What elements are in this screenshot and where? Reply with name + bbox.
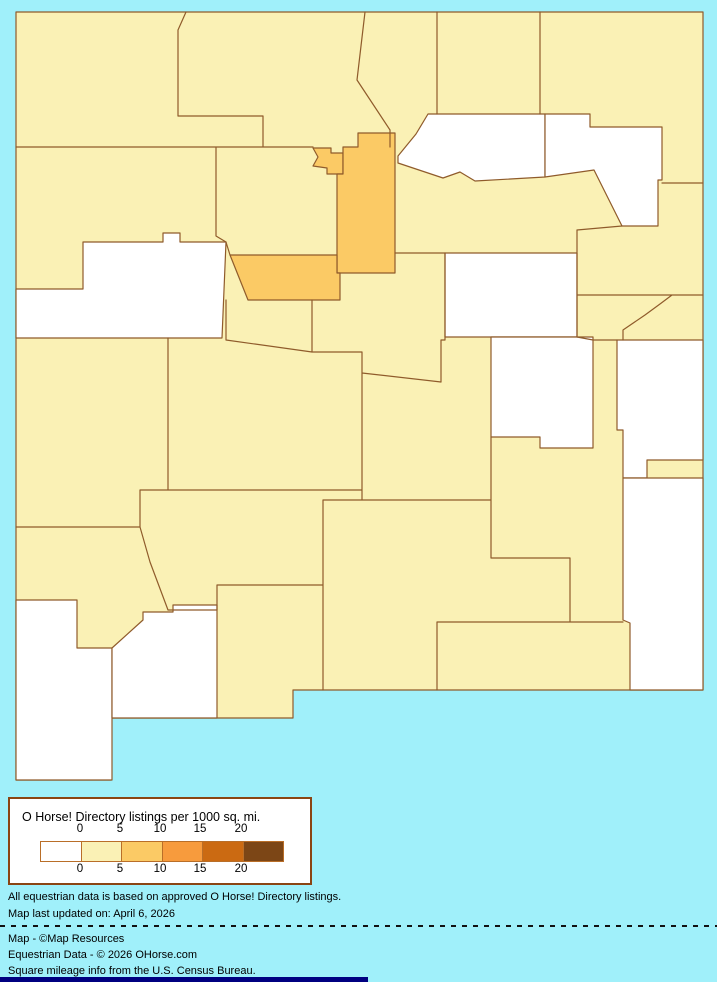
tick-label: 0 xyxy=(77,863,83,875)
tick-label: 5 xyxy=(117,863,123,875)
county-guadalupe xyxy=(445,253,577,337)
bottom-scrollbar-fragment xyxy=(0,977,368,982)
swatch-5 xyxy=(244,842,284,861)
legend-title: O Horse! Directory listings per 1000 sq.… xyxy=(22,810,260,824)
swatch-2 xyxy=(122,842,163,861)
tick-label: 10 xyxy=(154,863,167,875)
census-credit: Square mileage info from the U.S. Census… xyxy=(8,965,256,977)
tick-label: 20 xyxy=(235,863,248,875)
map-credit: Map - ©Map Resources xyxy=(8,933,124,945)
tick-label: 15 xyxy=(194,863,207,875)
swatch-3 xyxy=(163,842,204,861)
new-mexico-county-map xyxy=(0,0,717,790)
county-roosevelt xyxy=(617,340,703,478)
data-credit: Equestrian Data - © 2026 OHorse.com xyxy=(8,949,197,961)
ohorse-density-map-page: { "map": { "background_color": "#A0F0FA"… xyxy=(0,0,717,982)
swatch-0 xyxy=(41,842,82,861)
county-bernalillo xyxy=(230,255,340,300)
dashed-separator xyxy=(0,925,717,927)
tick-label: 5 xyxy=(117,823,123,835)
tick-label: 20 xyxy=(235,823,248,835)
swatch-1 xyxy=(82,842,123,861)
last-updated-note: Map last updated on: April 6, 2026 xyxy=(8,908,175,920)
swatch-4 xyxy=(203,842,244,861)
tick-label: 0 xyxy=(77,823,83,835)
county-lea xyxy=(623,478,703,690)
legend-color-ramp xyxy=(40,841,284,862)
county-santa-fe xyxy=(337,133,395,273)
data-source-note: All equestrian data is based on approved… xyxy=(8,891,341,903)
legend: O Horse! Directory listings per 1000 sq.… xyxy=(8,797,312,885)
county-de-baca xyxy=(491,337,593,448)
tick-label: 15 xyxy=(194,823,207,835)
tick-label: 10 xyxy=(154,823,167,835)
